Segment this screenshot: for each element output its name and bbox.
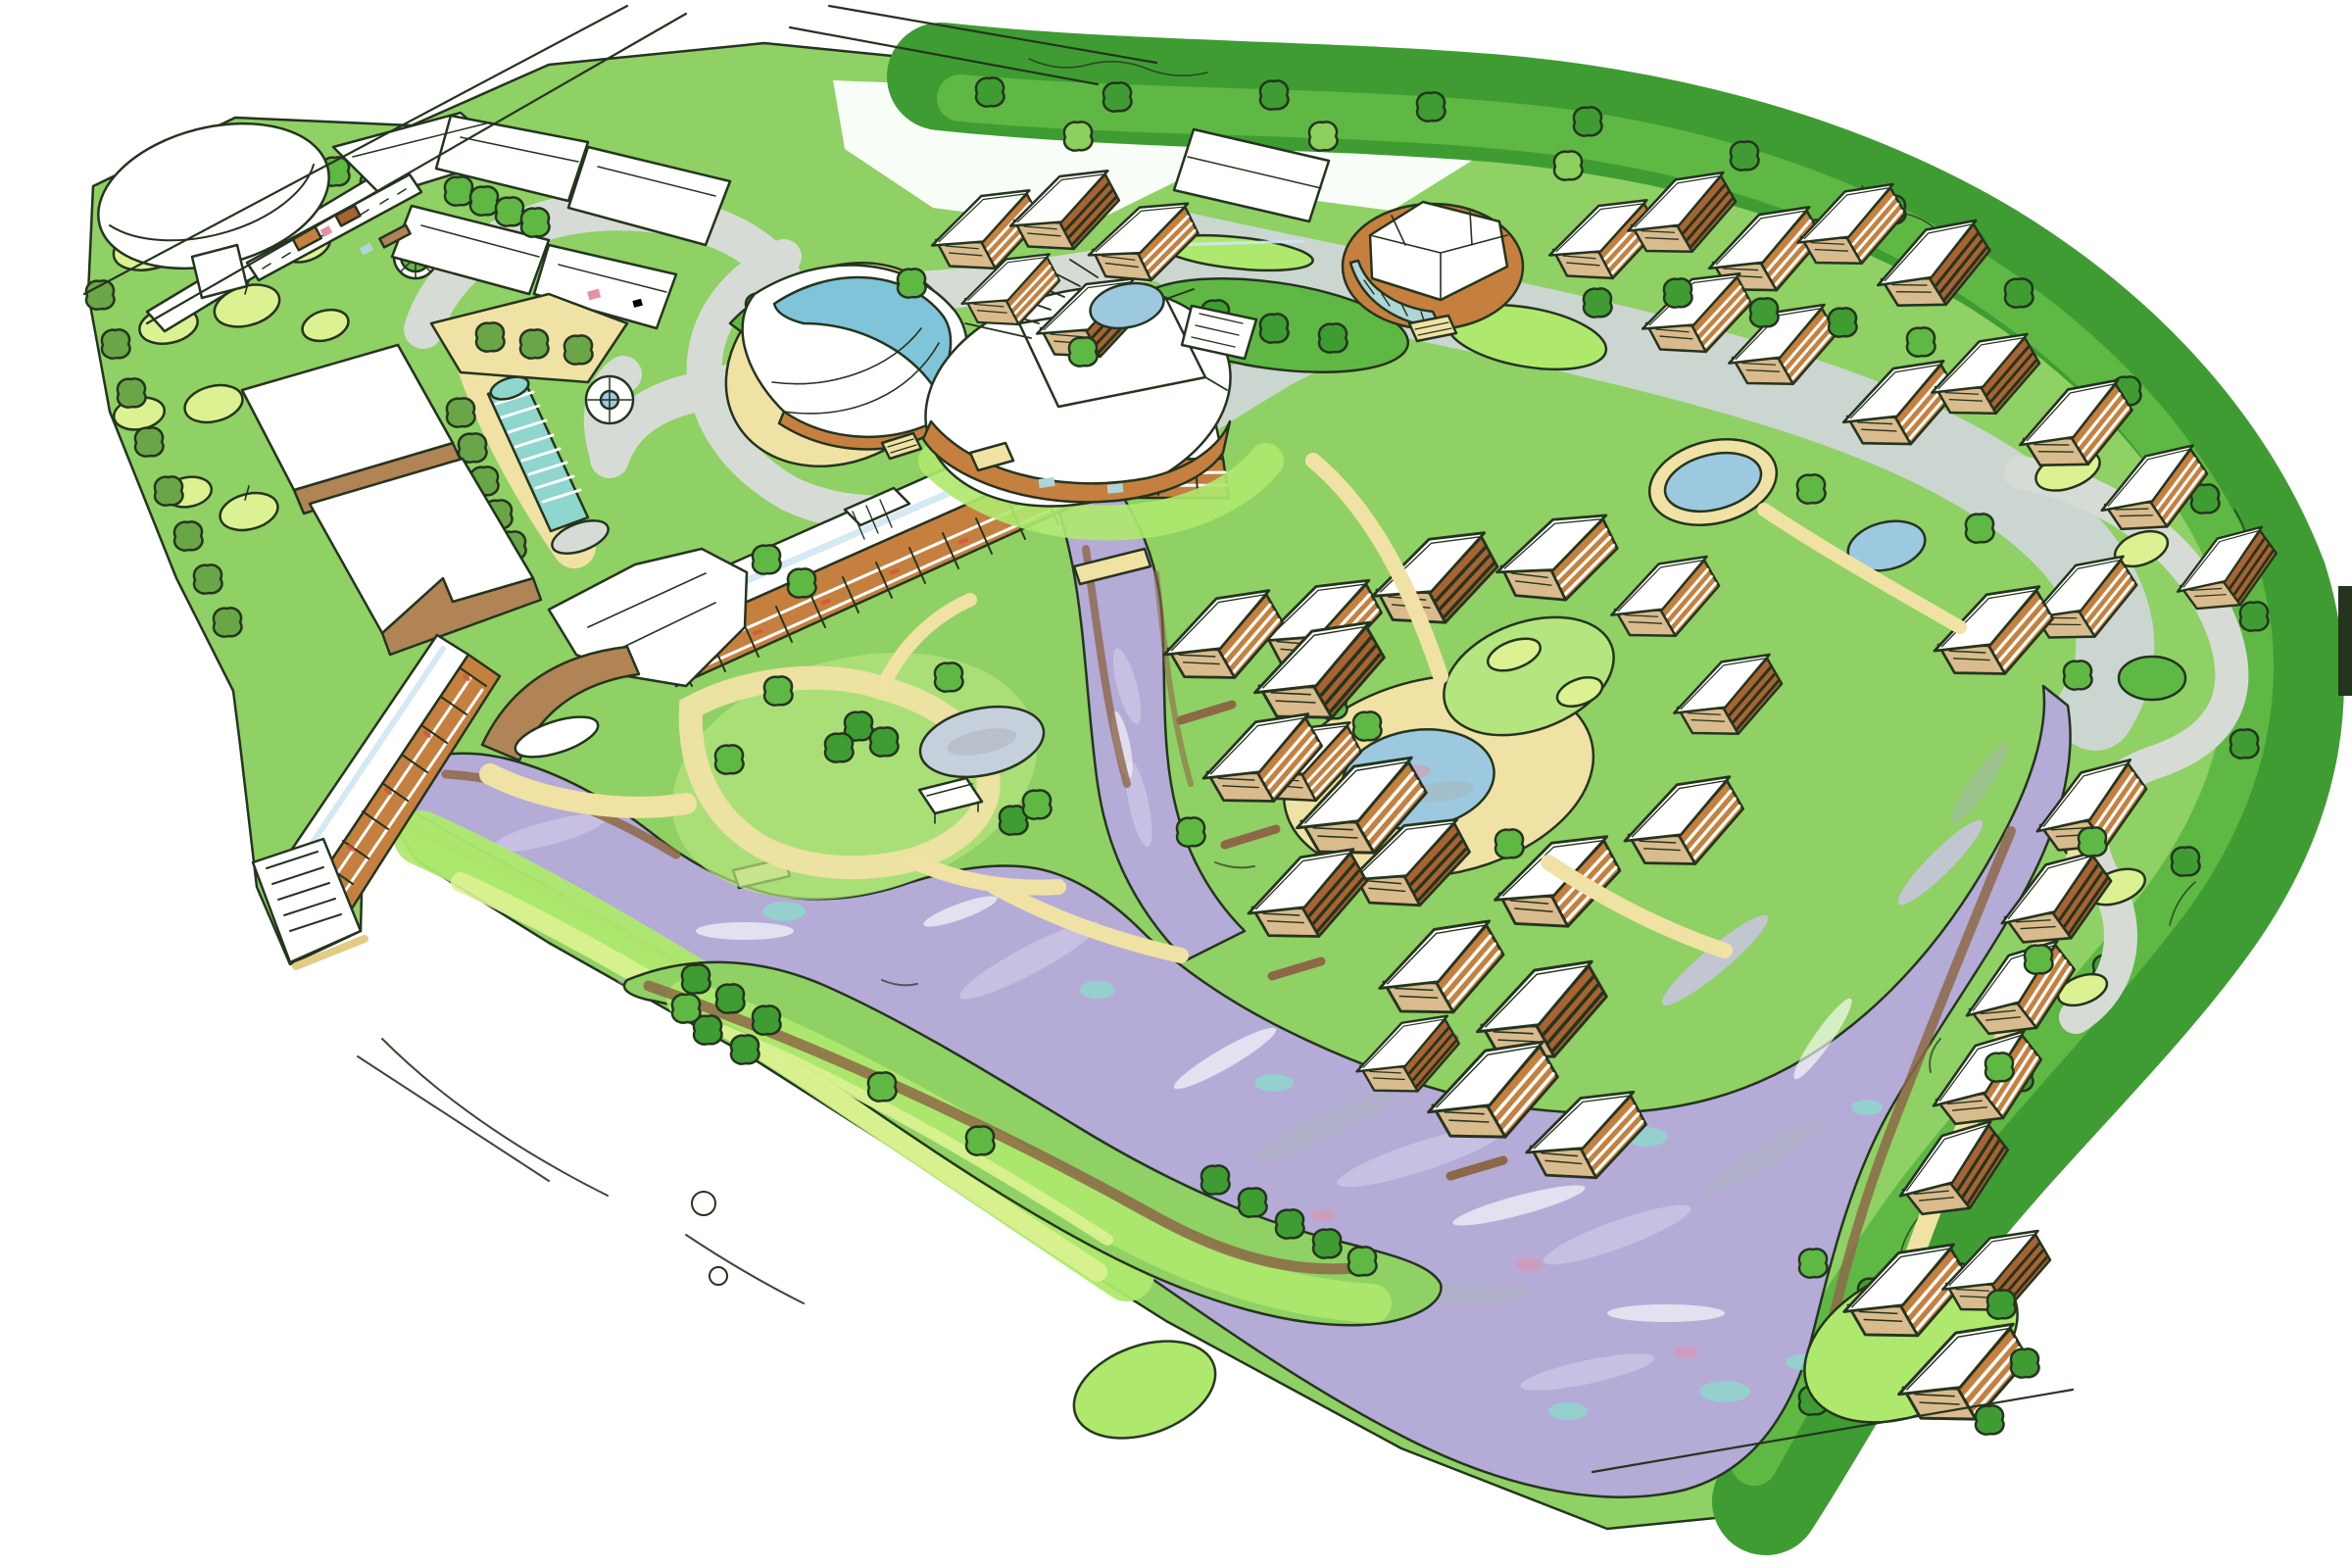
tree bbox=[1966, 514, 1994, 542]
tree bbox=[214, 608, 242, 636]
tree bbox=[1417, 92, 1445, 121]
tree bbox=[966, 1126, 995, 1154]
tree bbox=[731, 1035, 759, 1063]
tree bbox=[1201, 1165, 1230, 1194]
tree bbox=[1797, 474, 1826, 503]
tree bbox=[1584, 288, 1612, 317]
tree bbox=[1799, 1249, 1828, 1277]
bright-islet bbox=[1060, 1323, 1229, 1456]
tree bbox=[2025, 945, 2053, 973]
road-tree-island bbox=[2119, 657, 2185, 700]
tree bbox=[1319, 323, 1347, 352]
tree bbox=[2240, 602, 2269, 630]
shore-sketch-lines bbox=[358, 1039, 804, 1303]
tree bbox=[1985, 1053, 2014, 1081]
tree bbox=[174, 521, 203, 550]
tree bbox=[1731, 141, 1759, 170]
tree bbox=[2011, 1348, 2039, 1377]
tree bbox=[753, 545, 781, 573]
tree bbox=[682, 964, 710, 993]
tree bbox=[445, 176, 473, 205]
tree bbox=[2230, 729, 2259, 758]
tree bbox=[1309, 122, 1338, 150]
tree bbox=[1976, 1405, 2004, 1434]
tree bbox=[1829, 308, 1857, 336]
tree bbox=[476, 322, 505, 351]
tree bbox=[715, 745, 744, 773]
tree bbox=[672, 994, 701, 1022]
tree bbox=[1353, 711, 1382, 740]
tree bbox=[1023, 790, 1052, 818]
tree bbox=[1177, 817, 1205, 846]
tree bbox=[447, 398, 475, 426]
tree bbox=[753, 1005, 781, 1034]
tree bbox=[935, 662, 963, 691]
tree bbox=[1554, 151, 1583, 179]
tree bbox=[1276, 1209, 1304, 1238]
tree bbox=[1664, 278, 1692, 307]
masterplan-canvas bbox=[0, 0, 2352, 1568]
tree bbox=[1069, 337, 1098, 366]
tree bbox=[976, 77, 1004, 106]
tree bbox=[716, 984, 745, 1012]
tree bbox=[764, 676, 793, 705]
tree bbox=[2172, 847, 2200, 875]
tree bbox=[521, 208, 550, 236]
tree bbox=[1348, 1247, 1377, 1275]
tree bbox=[564, 335, 593, 364]
tree bbox=[520, 329, 549, 358]
tree bbox=[1260, 80, 1289, 109]
tree bbox=[1987, 1290, 2016, 1318]
tree bbox=[1239, 1188, 1267, 1216]
tree bbox=[1495, 829, 1524, 857]
tree bbox=[825, 733, 854, 761]
tree bbox=[870, 727, 899, 756]
tree bbox=[868, 1072, 897, 1101]
tree bbox=[788, 568, 816, 597]
tree bbox=[470, 186, 499, 215]
tree bbox=[135, 427, 164, 456]
tree bbox=[118, 378, 146, 407]
page-edge-mark bbox=[2338, 586, 2352, 696]
tree bbox=[496, 197, 524, 225]
tree bbox=[1103, 82, 1132, 111]
tree bbox=[1313, 1229, 1342, 1257]
tree bbox=[194, 564, 222, 593]
fountain-roundabout-cascade bbox=[586, 376, 633, 423]
tree bbox=[1260, 314, 1289, 342]
tree bbox=[1750, 298, 1779, 326]
tree bbox=[1907, 327, 1935, 356]
tree bbox=[155, 476, 183, 505]
tree bbox=[2079, 827, 2107, 856]
tree bbox=[1574, 107, 1602, 135]
tree bbox=[898, 269, 926, 297]
masterplan-illustration bbox=[0, 0, 2352, 1568]
tree bbox=[2064, 661, 2092, 689]
tree bbox=[102, 329, 130, 358]
tree bbox=[1064, 122, 1093, 150]
tree bbox=[2005, 278, 2033, 307]
